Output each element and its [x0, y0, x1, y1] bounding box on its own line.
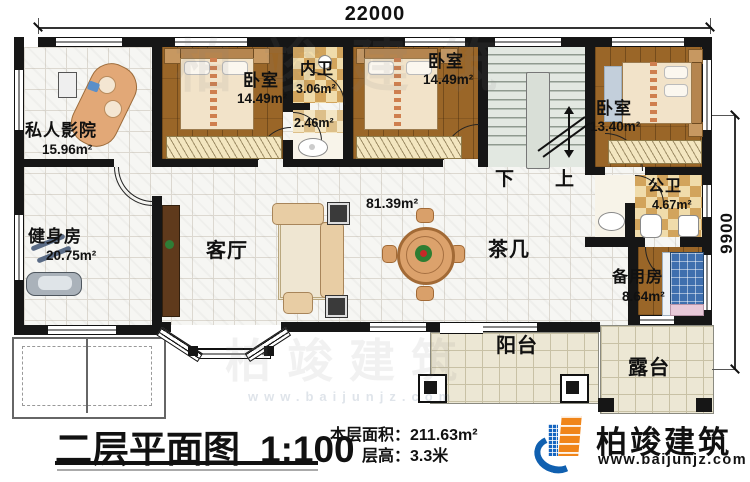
window-bed3-top: [612, 37, 684, 47]
room-label-inner-bath: 内卫: [300, 62, 334, 78]
bed3-nightstand-b: [688, 122, 703, 137]
public-bath-basin: [678, 215, 699, 237]
cinema-cushion-2: [104, 100, 122, 118]
room-area-inner-bath: 3.06m²: [296, 83, 336, 96]
spare-bed-pillow: [670, 304, 704, 316]
stair-down-label: 下: [495, 170, 515, 189]
gym-treadmill-belt: [38, 276, 72, 290]
window-hall-bottom: [483, 322, 537, 332]
hall-area-label: 81.39m²: [366, 196, 418, 210]
sofa-right: [320, 222, 344, 298]
bed1-wardrobe: [166, 136, 282, 159]
watermark-url: www.baijunjz.com: [248, 390, 456, 403]
wall-spare-left: [628, 247, 638, 325]
wall-stair-bed3: [585, 37, 595, 167]
room-label-balcony: 阳台: [496, 336, 538, 356]
room-area-bedroom3: 13.40m²: [590, 120, 640, 134]
room-label-tea-table: 茶几: [488, 240, 530, 260]
window-living-bottom: [370, 322, 426, 332]
dimension-top-value: 22000: [320, 4, 430, 24]
terrace-corner-l: [598, 398, 614, 412]
window-cinema-left: [14, 70, 24, 130]
floor-height-label: 层高：: [322, 446, 410, 467]
cinema-cushion-1: [98, 76, 116, 94]
title-underline-thick: [55, 461, 318, 465]
tv-cabinet: [162, 205, 180, 317]
bed3-pillow-t: [664, 66, 688, 79]
window-gym-bottom: [48, 325, 116, 335]
room-area-public-bath: 4.67m²: [652, 199, 692, 212]
room-area-bedroom2: 14.49m²: [423, 73, 473, 87]
wall-spare-top-r: [680, 237, 712, 247]
floor-plan-canvas: 柏竣建筑 柏竣建筑 www.baijunjz.com 私人影院 15.96m² …: [0, 0, 750, 482]
bed2-wardrobe: [356, 136, 462, 159]
room-area-spare: 8.64m²: [622, 290, 665, 304]
room-label-bedroom1: 卧室: [243, 72, 279, 89]
dim-right-ext-t: [712, 115, 736, 116]
vanity-basin: [598, 212, 625, 231]
dining-centerpiece-flower: [420, 250, 427, 257]
cinema-side-table: [58, 72, 77, 98]
room-area-cinema: 15.96m²: [42, 143, 92, 157]
dimension-right-value: 9900: [718, 212, 735, 254]
brand-url: www.baijunjz.com: [598, 452, 747, 468]
side-table-bottom: [326, 296, 347, 317]
stair-arrow-up-head: [564, 106, 574, 114]
inner-bath2-basin-drain: [309, 144, 315, 150]
stair-arrow-down-head: [564, 150, 574, 158]
window-spare-bottom: [640, 315, 674, 325]
floor-stats: 本层面积： 211.63m² 层高： 3.3米: [322, 425, 478, 467]
floor-area-label: 本层面积：: [322, 425, 410, 446]
dining-chair-s: [416, 286, 434, 301]
terrace-corner-r: [696, 398, 712, 412]
bed3-wardrobe: [608, 140, 702, 164]
sofa-top: [272, 203, 324, 225]
public-bath-toilet: [640, 214, 662, 238]
dim-right-ext-b: [712, 369, 736, 370]
brand-logo-blue-tower-icon: [548, 424, 558, 456]
room-area-gym: 20.75m²: [46, 249, 96, 263]
stair-up-label: 上: [555, 170, 575, 189]
living-rug: [278, 222, 326, 300]
lower-roof-divider: [86, 339, 88, 413]
room-label-gym: 健身房: [28, 228, 82, 245]
room-label-bedroom3: 卧室: [596, 100, 632, 117]
stair-arrow-line: [568, 112, 570, 152]
wall-bath-divider-r: [345, 103, 353, 110]
dining-chair-w: [382, 245, 397, 263]
room-area-inner-bath2: 2.46m²: [294, 117, 334, 130]
wall-cinema-bottom: [14, 159, 114, 167]
spare-bed: [670, 252, 704, 306]
window-bath-right: [702, 185, 712, 217]
dining-chair-n: [416, 208, 434, 223]
title-underline-thin: [57, 469, 318, 471]
brand-logo-orange-building-icon: [558, 416, 581, 456]
watermark-bottom: 柏竣建筑: [225, 338, 473, 384]
window-cinema-top: [56, 37, 122, 47]
wall-cinema-right: [152, 37, 162, 167]
window-bed3-right: [702, 60, 712, 130]
balcony-column-r-core: [566, 381, 579, 394]
bay-joint-l: [188, 346, 198, 356]
balcony-door-opening: [440, 322, 483, 334]
wall-spare-top-l: [585, 237, 645, 247]
room-label-spare: 备用房: [612, 270, 663, 286]
sofa-bottom: [283, 292, 313, 314]
tv-cabinet-plant: [165, 240, 174, 249]
window-gym-left: [14, 215, 24, 280]
floor-area-value: 211.63m²: [410, 425, 478, 446]
bed3-pillow-b: [664, 84, 688, 97]
side-table-top: [328, 203, 349, 224]
room-area-bedroom1: 14.49m²: [237, 92, 287, 106]
wall-bed3-bottom-r: [645, 167, 712, 175]
room-label-cinema: 私人影院: [25, 122, 97, 139]
dimension-top-line: [38, 27, 712, 29]
room-label-public-bath: 公卫: [648, 179, 682, 195]
room-label-terrace: 露台: [628, 358, 670, 378]
room-label-bedroom2: 卧室: [428, 53, 464, 70]
floor-height-row: 层高： 3.3米: [322, 446, 478, 467]
watermark-top: 柏竣建筑: [175, 38, 527, 96]
wall-bed1-bottom: [152, 159, 258, 167]
floor-height-value: 3.3米: [410, 446, 448, 467]
bed3-runner: [650, 62, 657, 122]
dimension-right-line: [734, 115, 736, 370]
wall-bed3-bottom-l: [585, 167, 605, 175]
wall-bed2-bottom: [343, 159, 443, 167]
floor-area-row: 本层面积： 211.63m²: [322, 425, 478, 446]
room-label-living: 客厅: [206, 241, 248, 261]
wall-gym-living: [152, 196, 162, 332]
